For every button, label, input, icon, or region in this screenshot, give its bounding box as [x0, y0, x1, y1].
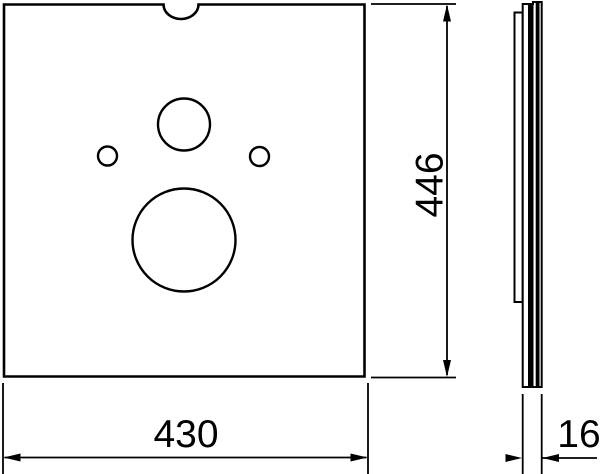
height-dimension: 446 — [371, 4, 456, 378]
front-view — [4, 5, 365, 377]
panel-outline-with-notch — [4, 5, 365, 377]
thickness-dimension-label: 16 — [557, 413, 600, 456]
side-dark-layer-1 — [528, 3, 534, 387]
arrowhead-right-icon — [351, 454, 368, 462]
insulation-plate-drawing: 446 430 16 — [0, 0, 600, 474]
side-rear-layer — [515, 13, 523, 303]
side-view — [515, 2, 542, 387]
width-dimension: 430 — [3, 383, 368, 474]
arrowhead-down-icon — [443, 360, 451, 377]
side-dark-layer-2 — [536, 2, 540, 387]
height-dimension-label: 446 — [409, 152, 452, 217]
width-dimension-label: 430 — [153, 413, 218, 456]
arrowhead-up-icon — [443, 5, 451, 22]
arrowhead-inward-right-icon — [506, 454, 523, 462]
thickness-dimension: 16 — [506, 394, 600, 474]
arrowhead-left-icon — [4, 454, 21, 462]
technical-drawing-canvas: 446 430 16 — [0, 0, 600, 474]
